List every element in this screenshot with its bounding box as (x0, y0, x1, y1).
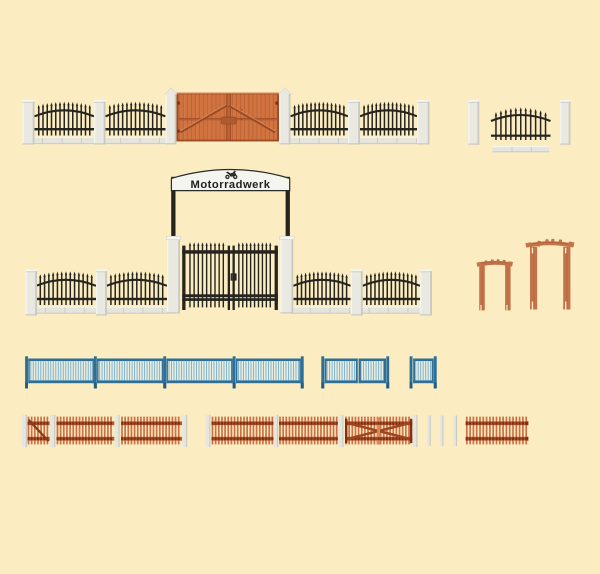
svg-text:Motorradwerk: Motorradwerk (191, 179, 271, 191)
